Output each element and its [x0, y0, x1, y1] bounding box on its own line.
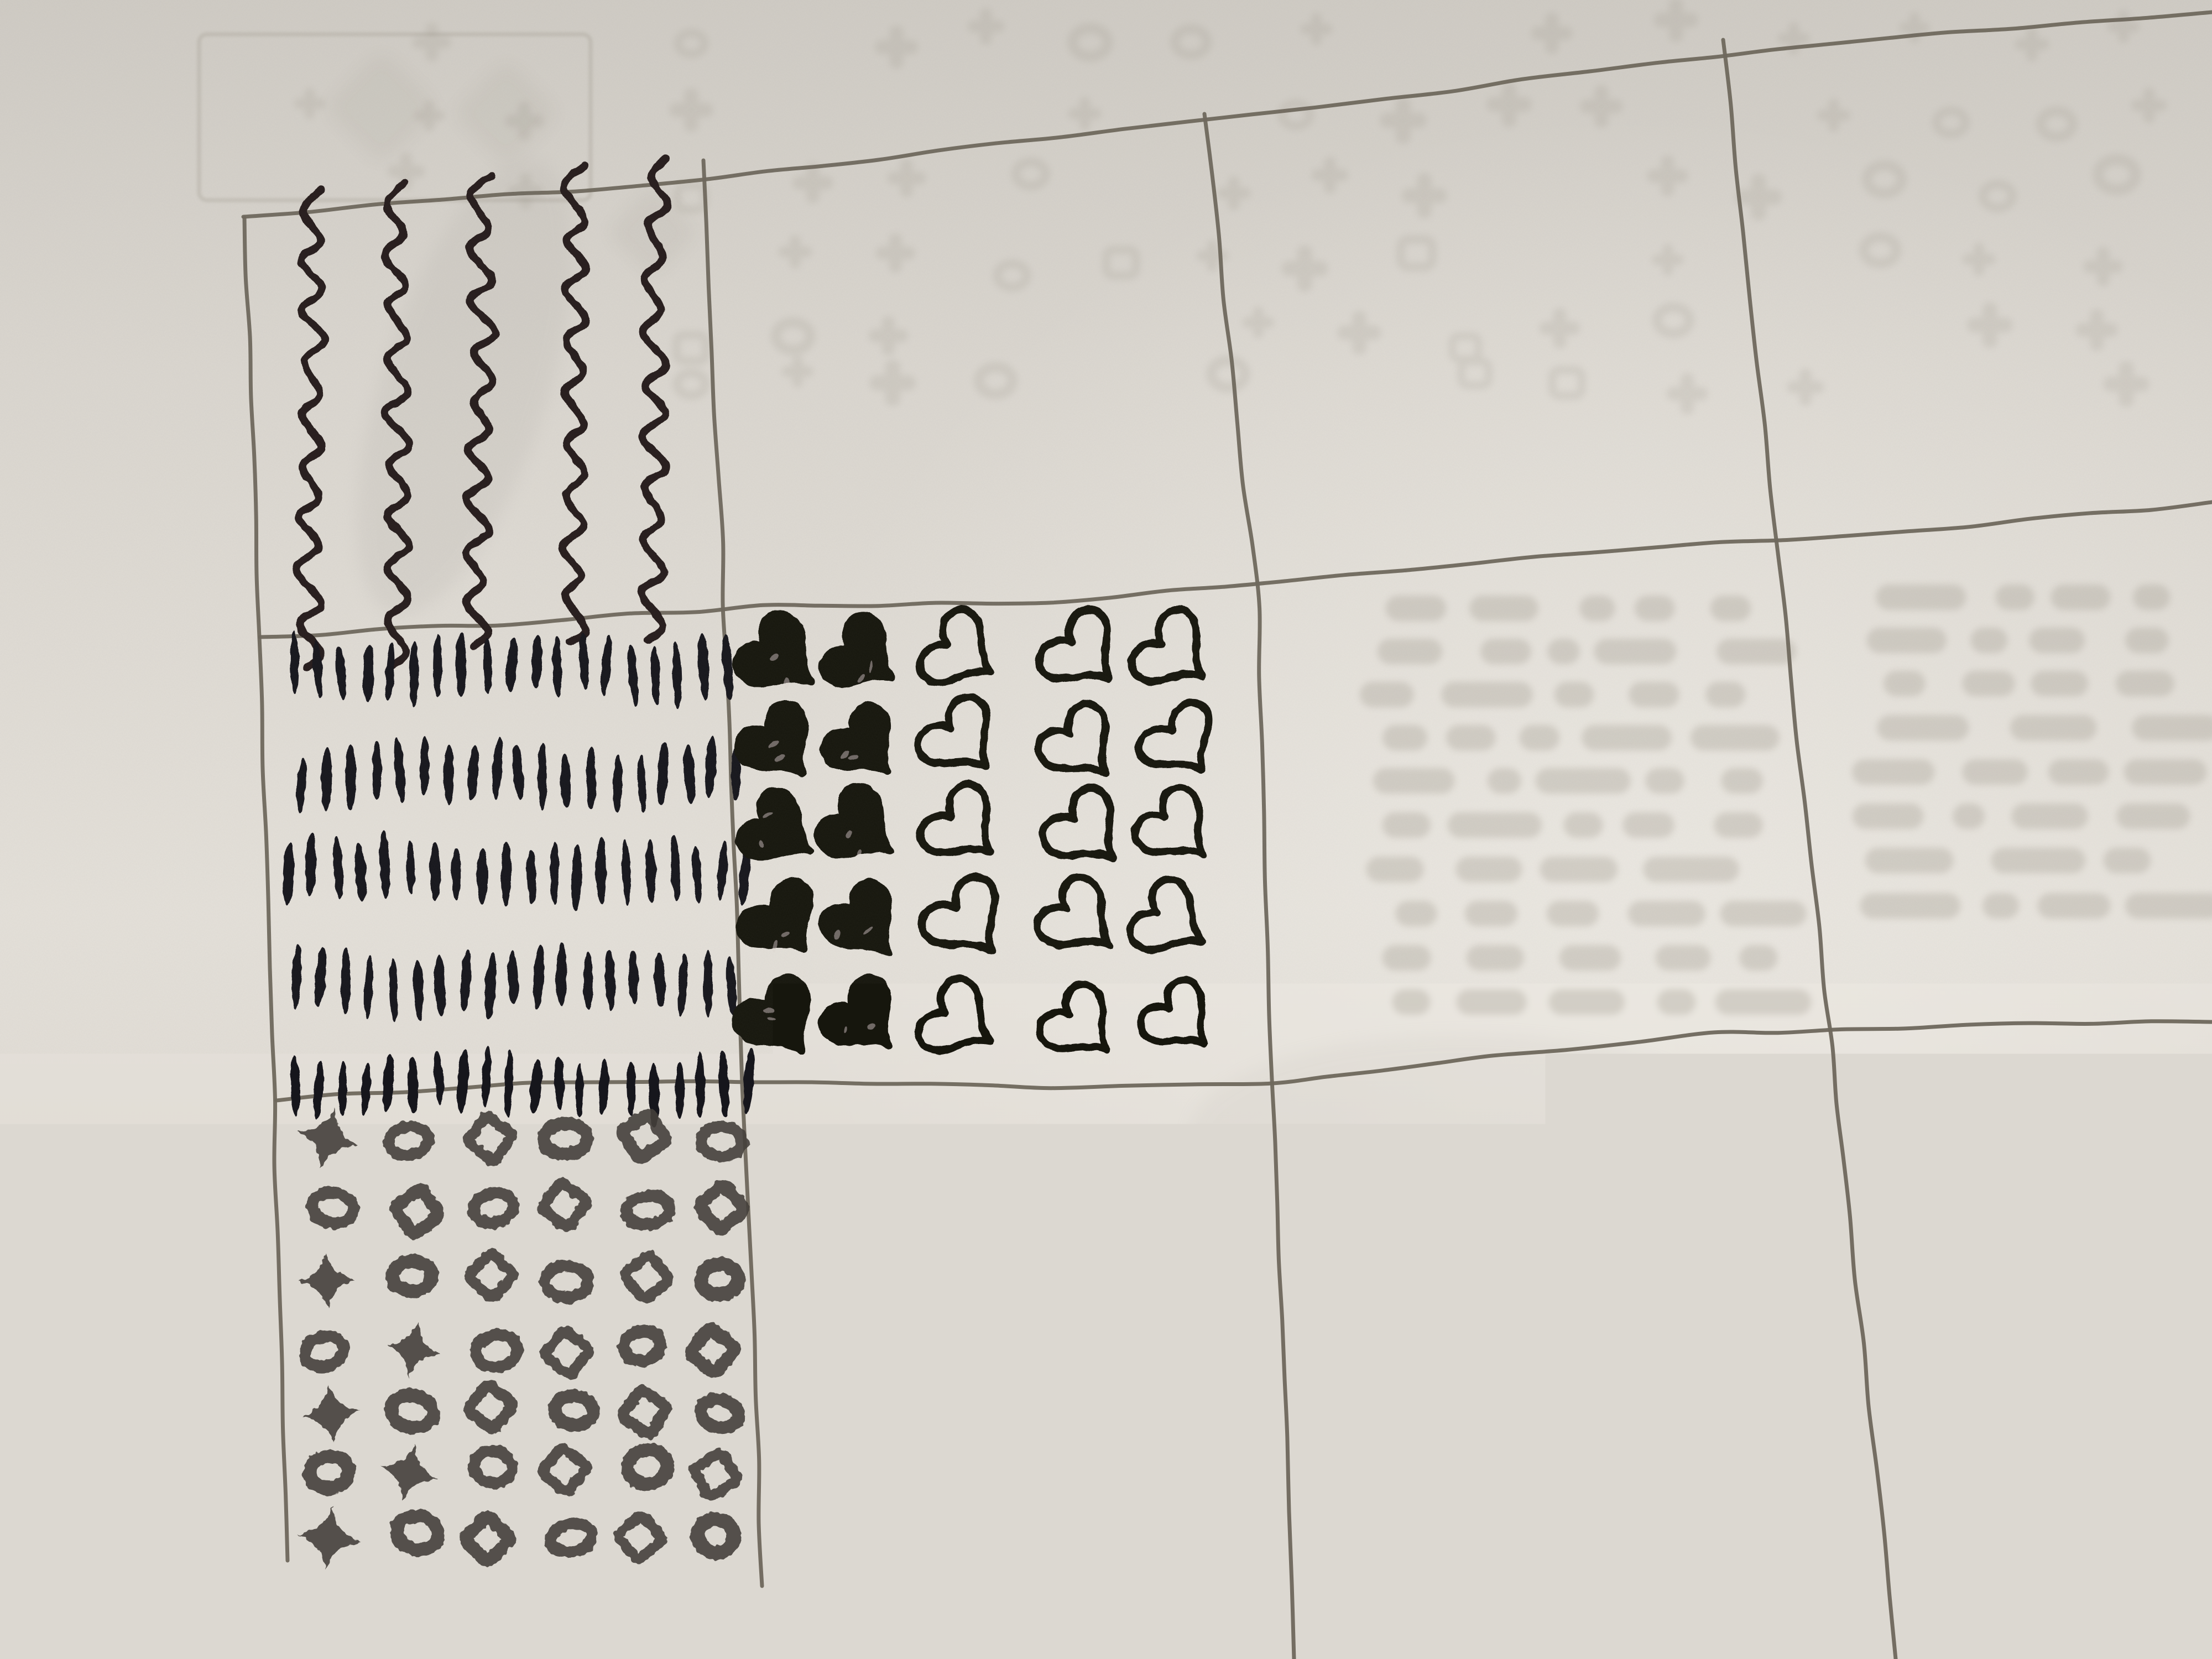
sketchbook-page-photo: Photograph of a sketchbook page: a hand-… — [0, 0, 2212, 1659]
hand-drawn-pattern-grid: Photograph of a sketchbook page: a hand-… — [0, 0, 2212, 1659]
paper-texture — [0, 0, 2212, 1659]
